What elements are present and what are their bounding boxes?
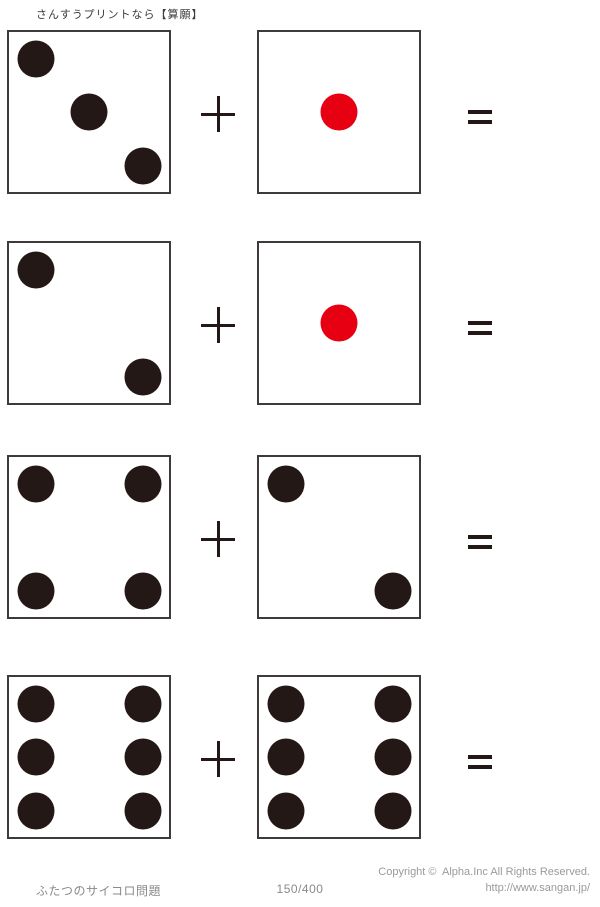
problem-row-4	[0, 675, 600, 839]
black-pip	[124, 147, 161, 184]
plus-sign	[200, 96, 236, 132]
black-pip	[124, 466, 161, 503]
equals-sign	[468, 755, 492, 769]
left-die	[7, 455, 171, 619]
right-die	[257, 455, 421, 619]
left-die	[7, 241, 171, 405]
black-pip	[18, 252, 55, 289]
black-pip	[124, 358, 161, 395]
plus-sign	[200, 521, 236, 557]
black-pip	[18, 572, 55, 609]
black-pip	[374, 792, 411, 829]
black-pip	[374, 739, 411, 776]
page-title: さんすうプリントなら【算願】	[36, 6, 204, 22]
black-pip	[18, 792, 55, 829]
worksheet-page: さんすうプリントなら【算願】 ふたつのサイコロ問題 150/400 Copyri…	[0, 0, 600, 907]
black-pip	[124, 572, 161, 609]
black-pip	[18, 739, 55, 776]
black-pip	[374, 686, 411, 723]
black-pip	[268, 686, 305, 723]
problem-row-3	[0, 455, 600, 619]
black-pip	[124, 739, 161, 776]
problem-row-1	[0, 30, 600, 194]
black-pip	[374, 572, 411, 609]
black-pip	[124, 686, 161, 723]
problem-row-2	[0, 241, 600, 405]
black-pip	[124, 792, 161, 829]
red-pip	[321, 305, 358, 342]
left-die	[7, 30, 171, 194]
black-pip	[268, 739, 305, 776]
black-pip	[18, 41, 55, 78]
right-die	[257, 675, 421, 839]
right-die	[257, 241, 421, 405]
black-pip	[268, 792, 305, 829]
equals-sign	[468, 535, 492, 549]
black-pip	[268, 466, 305, 503]
black-pip	[18, 686, 55, 723]
right-die	[257, 30, 421, 194]
equals-sign	[468, 321, 492, 335]
copyright-line2: http://www.sangan.jp/	[485, 882, 590, 894]
equals-sign	[468, 110, 492, 124]
plus-sign	[200, 741, 236, 777]
black-pip	[18, 466, 55, 503]
plus-sign	[200, 307, 236, 343]
copyright-notice: Copyright © Alpha.Inc All Rights Reserve…	[378, 864, 590, 896]
left-die	[7, 675, 171, 839]
red-pip	[321, 94, 358, 131]
copyright-line1: Copyright © Alpha.Inc All Rights Reserve…	[378, 866, 590, 878]
black-pip	[71, 94, 108, 131]
